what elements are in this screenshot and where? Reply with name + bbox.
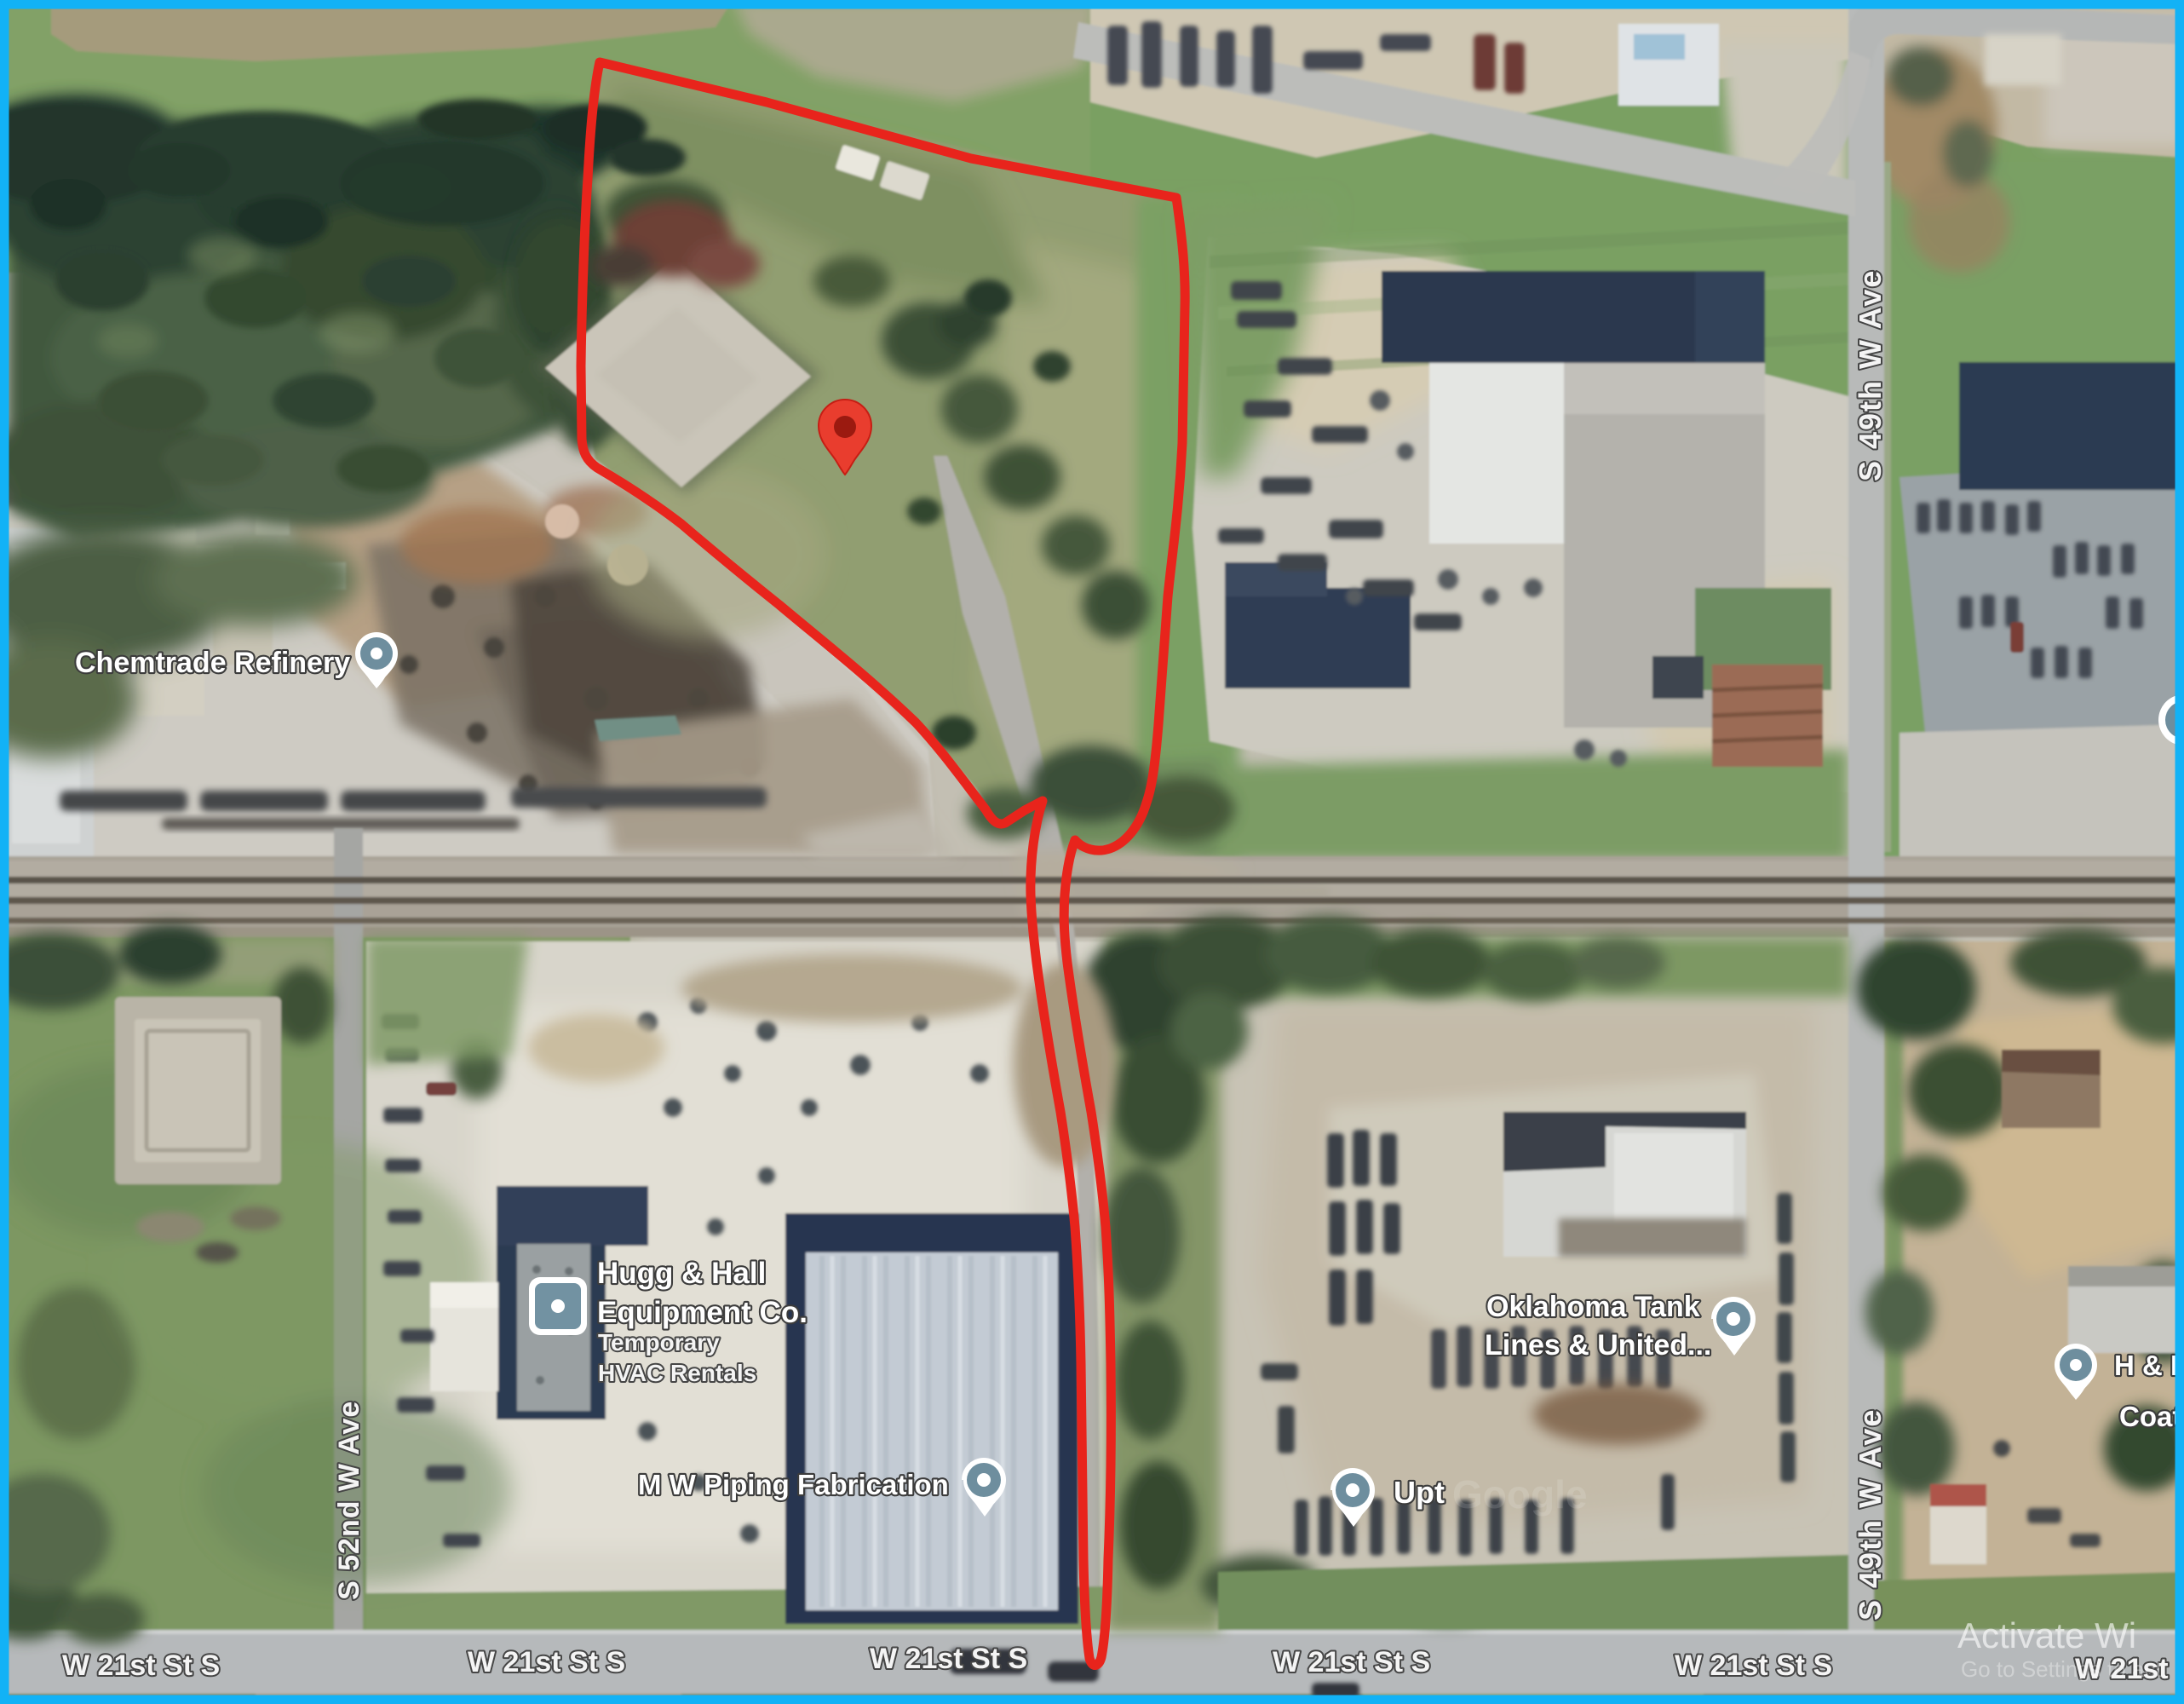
svg-text:Oklahoma Tank: Oklahoma Tank — [1486, 1291, 1700, 1323]
svg-text:Hugg & Hall: Hugg & Hall — [597, 1257, 766, 1290]
svg-text:Temporary: Temporary — [598, 1329, 720, 1356]
svg-text:W 21st St S: W 21st St S — [468, 1646, 625, 1678]
svg-text:Lines & United...: Lines & United... — [1485, 1329, 1711, 1361]
svg-text:Coating: Coating — [2119, 1401, 2184, 1432]
svg-text:Upt: Upt — [1394, 1475, 1445, 1510]
svg-text:W 21st St S: W 21st St S — [870, 1643, 1027, 1675]
svg-text:Go to Settings to acti: Go to Settings to acti — [1961, 1656, 2166, 1682]
svg-text:W 21st St S: W 21st St S — [1675, 1649, 1832, 1682]
svg-text:HVAC Rentals: HVAC Rentals — [598, 1360, 756, 1386]
svg-text:S 49th W Ave: S 49th W Ave — [1853, 269, 1888, 481]
svg-text:Activate Wi: Activate Wi — [1957, 1615, 2136, 1655]
svg-text:W 21st St S: W 21st St S — [62, 1649, 220, 1682]
svg-text:H & H P: H & H P — [2114, 1350, 2184, 1381]
svg-text:S 49th W Ave: S 49th W Ave — [1853, 1408, 1888, 1621]
svg-text:Chemtrade Refinery: Chemtrade Refinery — [75, 647, 350, 679]
svg-text:Google: Google — [1452, 1472, 1587, 1517]
svg-text:S 52nd W Ave: S 52nd W Ave — [333, 1401, 365, 1600]
svg-text:W 21st St S: W 21st St S — [1273, 1646, 1430, 1678]
svg-text:M W Piping Fabrication: M W Piping Fabrication — [638, 1469, 949, 1500]
svg-text:Equipment Co.: Equipment Co. — [597, 1296, 808, 1329]
